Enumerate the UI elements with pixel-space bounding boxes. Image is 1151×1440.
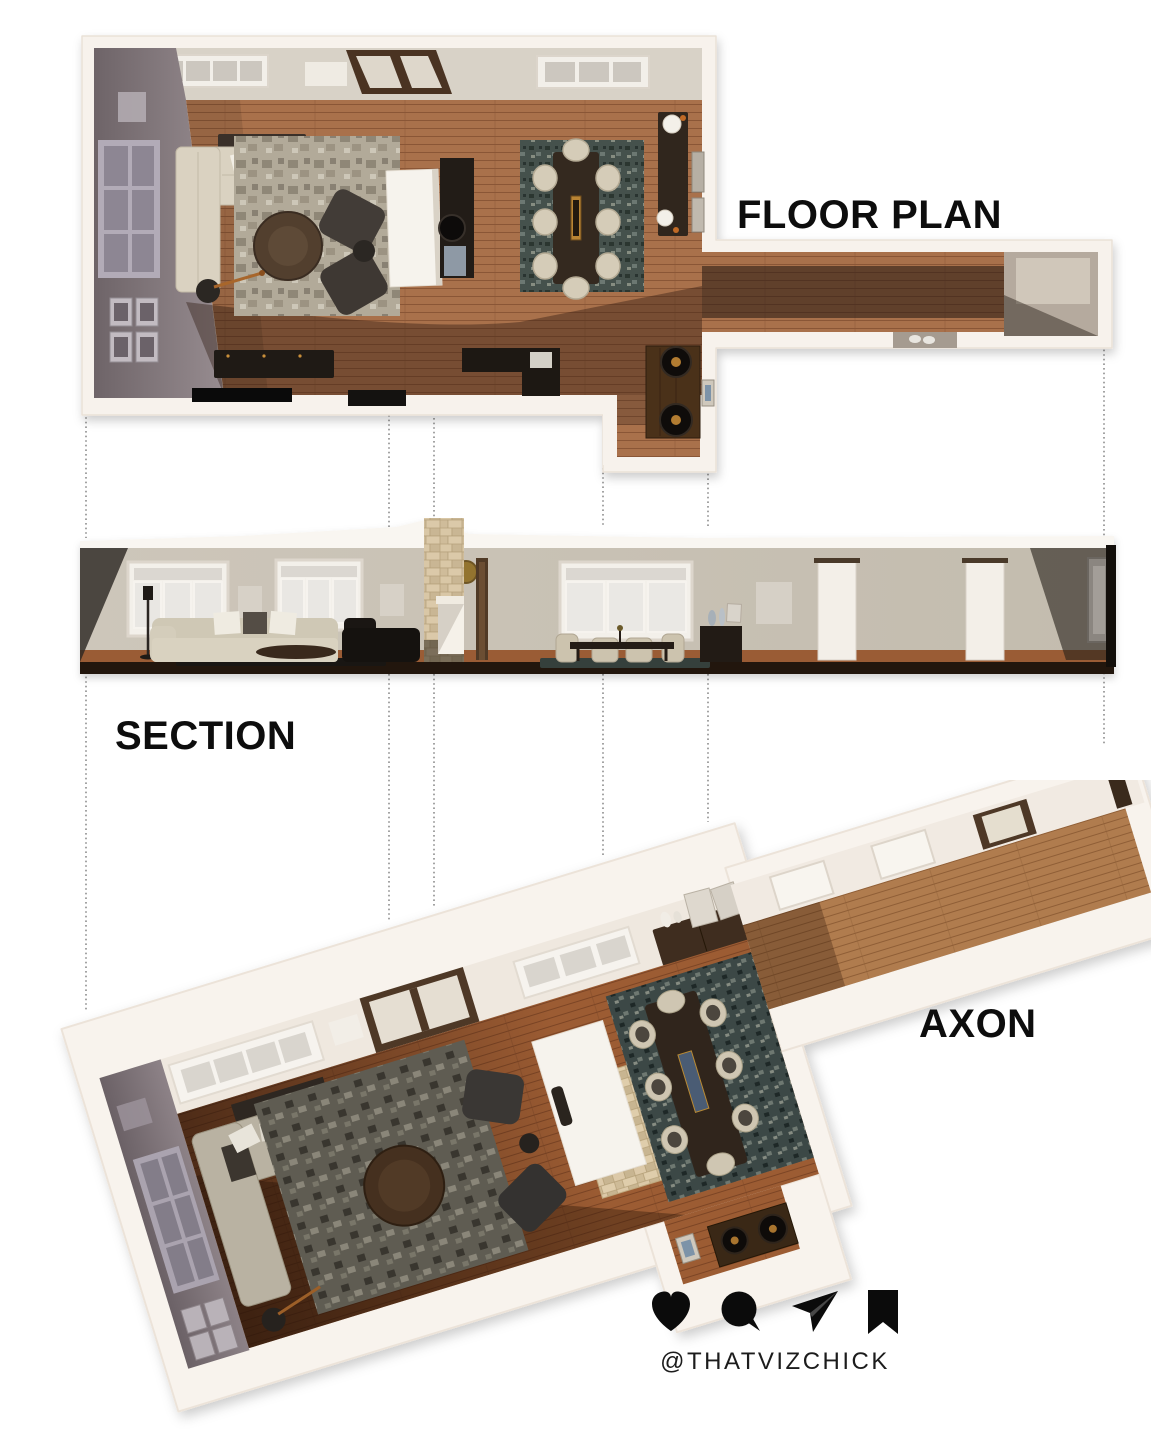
- section-render: [0, 515, 1151, 700]
- floor-plan-label: FLOOR PLAN: [737, 195, 1002, 235]
- door-frame: [476, 558, 488, 660]
- floor-mat: [348, 390, 406, 406]
- door: [962, 558, 1008, 660]
- bar-cabinet: [646, 346, 700, 438]
- heart-icon[interactable]: [648, 1289, 694, 1335]
- plan-north-wall: [94, 48, 702, 100]
- tv: [192, 388, 292, 402]
- presentation-board: FLOOR PLAN SECTION AXON: [0, 0, 1151, 1440]
- appliance: [444, 246, 466, 276]
- plan-corridor-nook: [893, 332, 957, 348]
- footer: @THATVIZCHICK: [575, 1286, 975, 1376]
- kitchen-island: [386, 169, 442, 287]
- media-console: [214, 350, 334, 378]
- armchair: [461, 1068, 525, 1126]
- window-icon: [537, 56, 649, 88]
- entry-double-door: [346, 50, 452, 94]
- plan-living-area: [176, 134, 400, 319]
- door: [814, 558, 860, 660]
- side-table: [353, 240, 375, 262]
- cooktop: [439, 215, 465, 241]
- round-coffee-table: [254, 212, 322, 280]
- table-lamp: [657, 210, 673, 226]
- floor-plan-render: [0, 0, 1151, 512]
- section-ceiling: [80, 520, 1114, 552]
- window-icon: [560, 562, 692, 640]
- coffee-table: [256, 645, 336, 659]
- plan-dining-area: [520, 139, 644, 299]
- axon-label: AXON: [919, 1004, 1037, 1044]
- social-icon-row: [648, 1286, 902, 1338]
- bookmark-icon[interactable]: [864, 1288, 902, 1336]
- share-icon[interactable]: [788, 1289, 840, 1335]
- author-handle: @THATVIZCHICK: [660, 1348, 890, 1376]
- comment-icon[interactable]: [718, 1289, 764, 1335]
- section-label: SECTION: [115, 716, 296, 756]
- window-icon: [98, 140, 160, 278]
- table-lamp: [663, 115, 681, 133]
